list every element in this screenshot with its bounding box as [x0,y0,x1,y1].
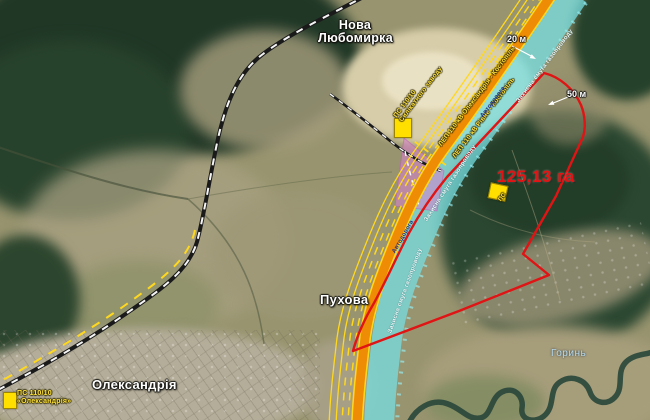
field-boundary-line [0,146,188,199]
field-boundary-line [188,172,392,199]
railway-line [0,0,369,392]
settlement-pukhova: Пухова [320,292,368,307]
railway-clearance-dashed-line [0,230,195,385]
settlement-nova-liubomyrka-line2: Любомирка [318,32,392,45]
measurement-20m: 20 м [507,34,526,44]
substation-oleksandriia-label-line1: ПС 110/10 [17,390,71,398]
settlement-nova-liubomyrka: Нова Любомирка [318,19,392,45]
river-horyn [408,348,650,420]
river-horyn-label: Горинь [551,348,586,359]
measurement-50m: 50 м [567,89,586,99]
substation-oleksandriia-label-line2: «Олександрія» [17,398,71,406]
substation-oleksandriia-label: ПС 110/10 «Олександрія» [17,390,71,406]
arrowhead-50m-icon [548,101,554,105]
field-boundary-line [188,199,264,344]
satellite-map[interactable]: ЛЕП 110 кВ Олександрія - Костопіль ЛЕП 1… [0,0,650,420]
settlement-oleksandriia: Олександрія [92,377,177,392]
substation-marker-oleksandriia [3,392,17,409]
railway-white-dashes [0,0,369,392]
site-area-label: 125,13 га [497,167,575,187]
